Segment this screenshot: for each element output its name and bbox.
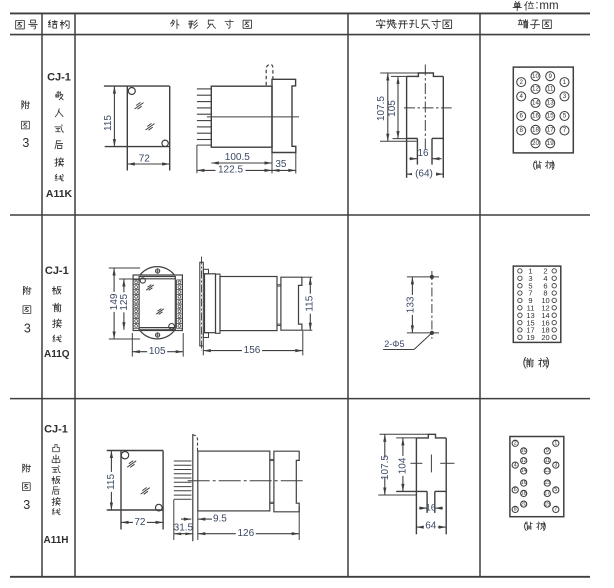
- svg-text:20: 20: [541, 333, 549, 342]
- svg-text:3: 3: [22, 136, 29, 150]
- svg-text:7: 7: [563, 127, 567, 134]
- svg-text:11: 11: [545, 458, 550, 464]
- svg-text:122.5: 122.5: [218, 165, 243, 176]
- svg-text:17: 17: [547, 127, 554, 134]
- svg-text:16: 16: [521, 480, 527, 486]
- svg-text:3: 3: [23, 498, 30, 512]
- svg-text:8: 8: [519, 127, 523, 134]
- svg-text:9: 9: [546, 448, 549, 454]
- svg-text:(: (: [532, 159, 536, 171]
- svg-text:11: 11: [547, 86, 554, 93]
- svg-text:9.5: 9.5: [213, 514, 227, 525]
- svg-text:115: 115: [106, 473, 117, 489]
- svg-text:10: 10: [521, 448, 527, 454]
- svg-text:9: 9: [548, 73, 552, 80]
- svg-text:19: 19: [544, 501, 550, 507]
- svg-text:): ): [543, 520, 547, 532]
- svg-text:156: 156: [244, 345, 261, 356]
- svg-text:31.5: 31.5: [174, 523, 194, 534]
- svg-text:1: 1: [554, 441, 557, 447]
- svg-text:A11Q: A11Q: [44, 349, 70, 360]
- svg-text:10: 10: [532, 73, 539, 80]
- svg-text:6: 6: [519, 113, 523, 120]
- svg-text:35: 35: [275, 159, 287, 170]
- svg-text:2: 2: [519, 79, 523, 86]
- svg-text:107.5: 107.5: [380, 455, 391, 480]
- svg-text:A11K: A11K: [46, 188, 73, 200]
- svg-text:12: 12: [532, 86, 539, 93]
- svg-text:(64): (64): [415, 169, 433, 180]
- svg-text:19: 19: [547, 140, 554, 147]
- svg-text:105: 105: [149, 346, 166, 357]
- svg-text:2: 2: [514, 441, 517, 447]
- svg-text:133: 133: [406, 296, 417, 313]
- svg-text:17: 17: [544, 491, 550, 497]
- svg-text:3: 3: [554, 462, 557, 468]
- svg-text:5: 5: [554, 487, 557, 493]
- svg-text:18: 18: [532, 127, 539, 134]
- svg-text:): ): [552, 159, 556, 171]
- svg-text:72: 72: [134, 517, 146, 528]
- svg-text:115: 115: [103, 115, 114, 131]
- svg-text:107.5: 107.5: [376, 96, 387, 121]
- svg-text:100.5: 100.5: [225, 152, 250, 163]
- svg-text:A11H: A11H: [43, 535, 68, 546]
- svg-text:16: 16: [426, 503, 437, 514]
- svg-text:): ): [546, 357, 550, 369]
- svg-text:15: 15: [544, 480, 550, 486]
- svg-text:19: 19: [526, 333, 534, 342]
- svg-text:13: 13: [547, 100, 554, 107]
- svg-text:15: 15: [547, 113, 554, 120]
- svg-text:mm: mm: [539, 0, 558, 12]
- svg-text:14: 14: [532, 100, 539, 107]
- svg-text::: :: [535, 0, 538, 12]
- svg-text:3: 3: [24, 321, 31, 335]
- svg-text:4: 4: [519, 93, 523, 100]
- svg-text:18: 18: [521, 491, 527, 497]
- svg-text:115: 115: [305, 295, 316, 311]
- svg-text:CJ-1: CJ-1: [44, 423, 68, 435]
- svg-text:16: 16: [417, 148, 429, 159]
- svg-text:2-Φ5: 2-Φ5: [384, 339, 404, 349]
- svg-text:20: 20: [521, 501, 527, 507]
- svg-text:64: 64: [425, 521, 437, 532]
- svg-text:126: 126: [237, 528, 254, 539]
- svg-text:72: 72: [139, 154, 151, 165]
- svg-text:12: 12: [521, 458, 527, 464]
- svg-text:3: 3: [563, 93, 567, 100]
- svg-text:16: 16: [532, 113, 539, 120]
- svg-text:125: 125: [119, 294, 130, 311]
- svg-text:(: (: [523, 357, 527, 369]
- svg-text:1: 1: [563, 79, 567, 86]
- svg-text:CJ-1: CJ-1: [47, 71, 71, 83]
- svg-text:105: 105: [387, 100, 398, 117]
- svg-text:14: 14: [521, 468, 527, 474]
- svg-text:CJ-1: CJ-1: [45, 265, 69, 277]
- svg-text:13: 13: [544, 468, 550, 474]
- svg-text:6: 6: [514, 487, 517, 493]
- svg-text:104: 104: [398, 457, 409, 474]
- svg-text:8: 8: [514, 507, 517, 513]
- svg-text:20: 20: [532, 140, 539, 147]
- svg-text:5: 5: [563, 113, 567, 120]
- svg-text:4: 4: [514, 462, 517, 468]
- svg-text:7: 7: [554, 507, 557, 513]
